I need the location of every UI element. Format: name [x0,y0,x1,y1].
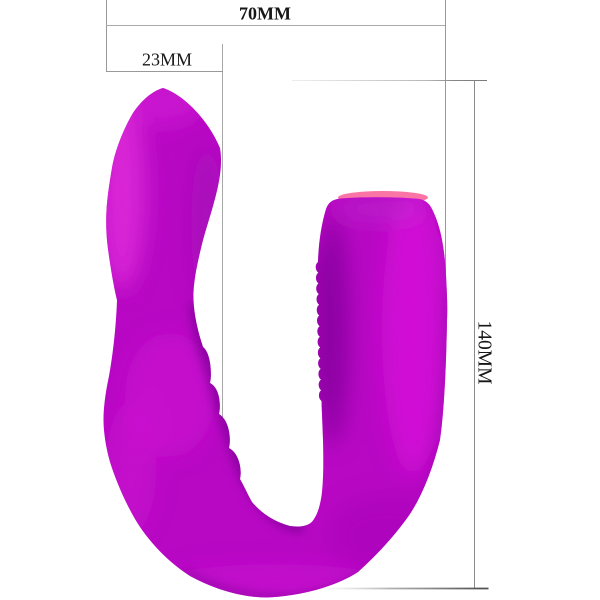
svg-text:70MM: 70MM [239,4,291,24]
svg-text:140MM: 140MM [474,321,495,385]
svg-text:23MM: 23MM [142,50,192,70]
